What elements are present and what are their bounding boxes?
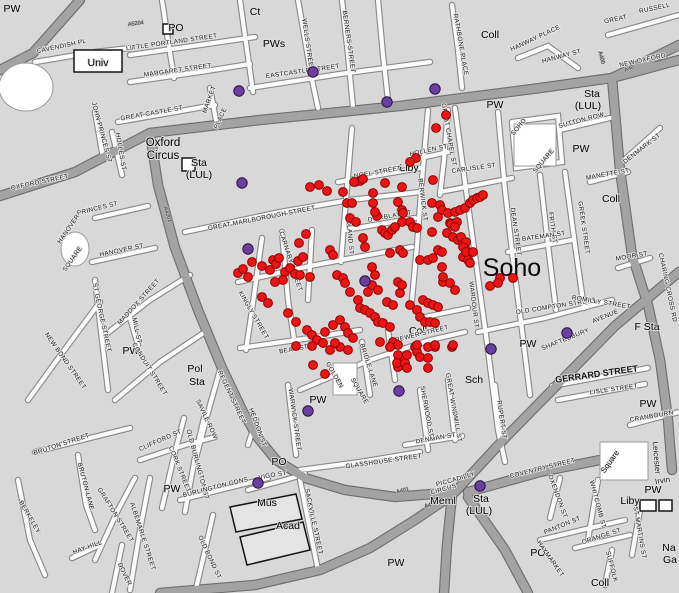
place-abbrev-label: Meml bbox=[430, 495, 456, 507]
cholera-death-dot bbox=[349, 334, 358, 343]
cholera-death-dot bbox=[295, 239, 304, 248]
street-label: GERRARD STREET bbox=[555, 363, 640, 385]
cholera-death-dot bbox=[309, 361, 318, 370]
open-square-area bbox=[0, 63, 53, 111]
cholera-death-dot bbox=[329, 251, 338, 260]
place-abbrev-label: PO bbox=[168, 22, 183, 34]
street-label: CONDUIT STREET bbox=[130, 342, 168, 397]
water-pump-dot bbox=[237, 178, 247, 188]
place-abbrev-label: PW bbox=[645, 484, 662, 496]
place-abbrev-label: Univ bbox=[87, 57, 109, 69]
street-label: HAYMARKET bbox=[535, 540, 565, 579]
street-label: GREAT bbox=[604, 14, 628, 26]
place-abbrev-label: Sch bbox=[465, 374, 483, 386]
cholera-death-dot bbox=[428, 228, 437, 237]
cholera-death-dot bbox=[369, 189, 378, 198]
cholera-death-dot bbox=[359, 234, 368, 243]
cholera-death-dot bbox=[399, 209, 408, 218]
street-label: LISLE STREET bbox=[589, 383, 638, 397]
place-abbrev-label: Acad bbox=[276, 520, 300, 532]
cholera-death-dot bbox=[284, 309, 293, 318]
cholera-death-dot bbox=[386, 343, 395, 352]
street-label: WELLS STREET bbox=[300, 18, 314, 71]
cholera-death-dot bbox=[344, 346, 353, 355]
place-abbrev-label: Coll bbox=[481, 29, 499, 41]
cholera-death-dot bbox=[466, 259, 475, 268]
place-abbrev-label: (LUL) bbox=[575, 100, 601, 112]
cholera-death-dot bbox=[396, 289, 405, 298]
street bbox=[440, 178, 512, 192]
cholera-death-dot bbox=[350, 178, 359, 187]
cholera-death-dot bbox=[494, 279, 503, 288]
cholera-death-dot bbox=[321, 328, 330, 337]
place-abbrev-label: PW bbox=[520, 338, 537, 350]
place-abbrev-label: Na bbox=[662, 542, 676, 554]
cholera-death-dot bbox=[348, 199, 357, 208]
cholera-death-dot bbox=[368, 263, 377, 272]
cholera-death-dot bbox=[302, 230, 311, 239]
cholera-death-dot bbox=[292, 318, 301, 327]
cholera-death-dot bbox=[469, 248, 478, 257]
street-label: BERNERS STREET bbox=[341, 10, 357, 73]
cholera-death-dot bbox=[352, 218, 361, 227]
street-label: Irvin bbox=[654, 475, 670, 486]
cholera-death-dot bbox=[413, 224, 422, 233]
cholera-death-dot bbox=[341, 279, 350, 288]
cholera-death-dot bbox=[394, 198, 403, 207]
street-label: Leicester bbox=[651, 441, 663, 474]
cholera-death-dot bbox=[431, 341, 440, 350]
place-abbrev-label: PW bbox=[164, 483, 181, 495]
street-label: DENMARK ST bbox=[622, 132, 662, 165]
cholera-death-dot bbox=[486, 282, 495, 291]
cholera-death-dot bbox=[279, 276, 288, 285]
cholera-death-dot bbox=[296, 271, 305, 280]
cholera-death-dot bbox=[299, 253, 308, 262]
place-abbrev-label: F Sta bbox=[634, 321, 659, 333]
street-label: MADDOX STREET bbox=[116, 278, 161, 327]
cholera-death-dot bbox=[275, 254, 284, 263]
place-abbrev-label: Sta bbox=[189, 376, 205, 388]
cholera-death-dot bbox=[403, 351, 412, 360]
cholera-death-dot bbox=[442, 111, 451, 120]
cholera-death-dot bbox=[271, 278, 280, 287]
cholera-death-dot bbox=[323, 187, 332, 196]
map-canvas[interactable]: SohoOxfordCircusSta(LUL)Sta(LUL)MemlSta(… bbox=[0, 0, 679, 593]
cholera-death-dot bbox=[369, 199, 378, 208]
place-abbrev-label: PO bbox=[271, 456, 286, 468]
cholera-death-dot bbox=[416, 256, 425, 265]
cholera-death-dot bbox=[399, 249, 408, 258]
cholera-death-dot bbox=[292, 342, 301, 351]
street-label: A5204 bbox=[128, 20, 145, 28]
cholera-death-dot bbox=[424, 364, 433, 373]
cholera-death-dot bbox=[354, 296, 363, 305]
cholera-death-dot bbox=[264, 299, 273, 308]
place-abbrev-label: PW bbox=[487, 99, 504, 111]
cholera-death-dot bbox=[244, 273, 253, 282]
place-abbrev-label: Coll bbox=[591, 577, 609, 589]
place-abbrev-label: Sta bbox=[584, 88, 600, 100]
water-pump-dot bbox=[360, 276, 370, 286]
major-road bbox=[468, 460, 600, 492]
water-pump-dot bbox=[430, 84, 440, 94]
cholera-death-dot bbox=[319, 339, 328, 348]
water-pump-dot bbox=[394, 386, 404, 396]
cholera-death-dot bbox=[432, 124, 441, 133]
cholera-death-dot bbox=[413, 341, 422, 350]
cholera-death-dot bbox=[361, 243, 370, 252]
place-abbrev-label: Ga bbox=[663, 554, 677, 566]
cholera-death-dot bbox=[434, 303, 443, 312]
cholera-death-dot bbox=[315, 181, 324, 190]
cholera-death-dot bbox=[438, 248, 447, 257]
place-abbrev-label: (LUL) bbox=[466, 505, 492, 517]
place-abbrev-label: Mus bbox=[257, 497, 277, 509]
cholera-death-dot bbox=[371, 271, 380, 280]
soho-cholera-map: SohoOxfordCircusSta(LUL)Sta(LUL)MemlSta(… bbox=[0, 0, 679, 593]
water-pump-dot bbox=[243, 244, 253, 254]
street-label: GREAT MARLBOROUGH STREET bbox=[207, 205, 316, 233]
cholera-death-dot bbox=[306, 273, 315, 282]
cholera-death-dot bbox=[248, 258, 257, 267]
cholera-death-dot bbox=[439, 273, 448, 282]
water-pump-dot bbox=[486, 344, 496, 354]
place-abbrev-label: PW bbox=[640, 398, 657, 410]
water-pump-dot bbox=[562, 328, 572, 338]
cholera-death-dot bbox=[451, 223, 460, 232]
place-abbrev-label: Liby bbox=[620, 495, 640, 507]
place-abbrev-label: PW bbox=[310, 394, 327, 406]
street bbox=[28, 302, 100, 400]
cholera-death-dot bbox=[403, 364, 412, 373]
cholera-death-dot bbox=[416, 353, 425, 362]
cholera-death-dot bbox=[371, 208, 380, 217]
cholera-death-dot bbox=[346, 288, 355, 297]
cholera-death-dot bbox=[429, 176, 438, 185]
cholera-death-dot bbox=[258, 262, 267, 271]
building-outline bbox=[640, 500, 656, 511]
cholera-death-dot bbox=[451, 286, 460, 295]
place-abbrev-label: Circus bbox=[147, 150, 180, 162]
label-layer: SohoOxfordCircusSta(LUL)Sta(LUL)MemlSta(… bbox=[4, 2, 679, 589]
cholera-death-dot bbox=[438, 263, 447, 272]
cholera-death-dot bbox=[391, 223, 400, 232]
water-pump-dot bbox=[308, 67, 318, 77]
place-abbrev-label: Sta bbox=[473, 493, 489, 505]
cholera-death-dot bbox=[429, 254, 438, 263]
water-pump-dot bbox=[382, 97, 392, 107]
cholera-death-dot bbox=[331, 339, 340, 348]
cholera-death-dot bbox=[509, 274, 518, 283]
cholera-death-dot bbox=[479, 191, 488, 200]
cholera-death-dot bbox=[389, 301, 398, 310]
place-abbrev-label: Ct bbox=[250, 6, 261, 18]
place-abbrev-label: PW bbox=[4, 3, 21, 15]
cholera-death-dot bbox=[449, 341, 458, 350]
cholera-death-dot bbox=[394, 341, 403, 350]
place-abbrev-label: Sta bbox=[191, 157, 207, 169]
cholera-death-dot bbox=[398, 183, 407, 192]
cholera-death-dot bbox=[386, 249, 395, 258]
cholera-death-dot bbox=[359, 175, 368, 184]
cholera-death-dot bbox=[393, 359, 402, 368]
water-pump-dot bbox=[234, 86, 244, 96]
cholera-death-dot bbox=[431, 319, 440, 328]
cholera-death-dot bbox=[398, 281, 407, 290]
cholera-death-dot bbox=[381, 179, 390, 188]
place-abbrev-label: PW bbox=[573, 143, 590, 155]
place-abbrev-label: Coll bbox=[602, 193, 620, 205]
street-label: A400 bbox=[596, 51, 605, 65]
cholera-death-dot bbox=[376, 338, 385, 347]
street-label: BRUTON STREET bbox=[33, 432, 91, 457]
building-outline bbox=[659, 500, 672, 511]
place-abbrev-label: Pol bbox=[187, 363, 202, 375]
cholera-death-dot bbox=[306, 183, 315, 192]
cholera-death-dot bbox=[428, 199, 437, 208]
cholera-death-dot bbox=[308, 342, 317, 351]
cholera-death-dot bbox=[374, 286, 383, 295]
water-pump-dot bbox=[303, 406, 313, 416]
cholera-death-dot bbox=[394, 351, 403, 360]
place-abbrev-label: (LUL) bbox=[186, 169, 212, 181]
water-pump-dot bbox=[253, 478, 263, 488]
cholera-death-dot bbox=[239, 265, 248, 274]
cholera-death-dot bbox=[339, 188, 348, 197]
street bbox=[420, 308, 468, 318]
place-abbrev-label: PW bbox=[388, 557, 405, 569]
street-label: RUSSELL bbox=[639, 2, 671, 15]
cholera-death-dot bbox=[434, 213, 443, 222]
place-abbrev-label: PWs bbox=[263, 38, 285, 50]
cholera-death-dot bbox=[406, 158, 415, 167]
major-road bbox=[444, 495, 452, 593]
place-abbrev-label: Oxford bbox=[146, 137, 181, 149]
street-label: OXFORD STREET bbox=[10, 173, 69, 192]
cholera-death-dot bbox=[424, 354, 433, 363]
cholera-death-dot bbox=[321, 370, 330, 379]
cholera-death-dot bbox=[386, 323, 395, 332]
water-pump-dot bbox=[475, 481, 485, 491]
street-label: NEW BOND STREET bbox=[43, 332, 87, 391]
